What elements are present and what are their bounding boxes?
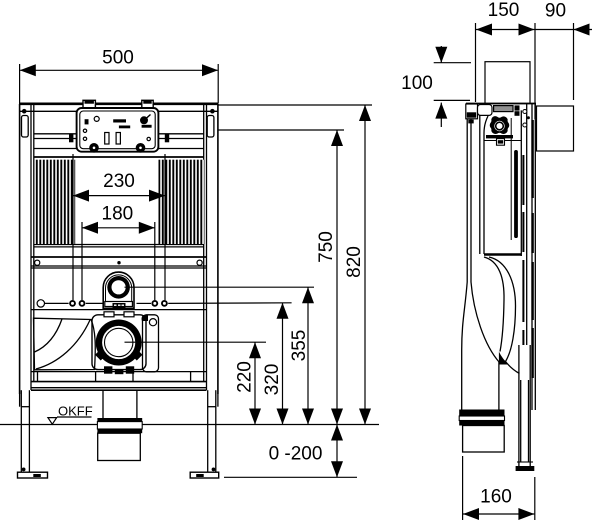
svg-text:220: 220: [235, 361, 256, 393]
svg-text:160: 160: [480, 487, 512, 508]
svg-text:150: 150: [488, 0, 520, 21]
svg-text:500: 500: [102, 48, 134, 69]
svg-text:820: 820: [344, 246, 365, 278]
svg-text:0 -200: 0 -200: [269, 444, 323, 465]
svg-text:320: 320: [262, 364, 283, 396]
svg-text:230: 230: [103, 171, 135, 192]
svg-text:100: 100: [401, 73, 433, 94]
svg-text:90: 90: [545, 1, 566, 22]
svg-text:OKFF: OKFF: [58, 403, 93, 418]
svg-text:355: 355: [289, 330, 310, 362]
svg-text:180: 180: [102, 204, 134, 225]
svg-text:750: 750: [316, 231, 337, 263]
